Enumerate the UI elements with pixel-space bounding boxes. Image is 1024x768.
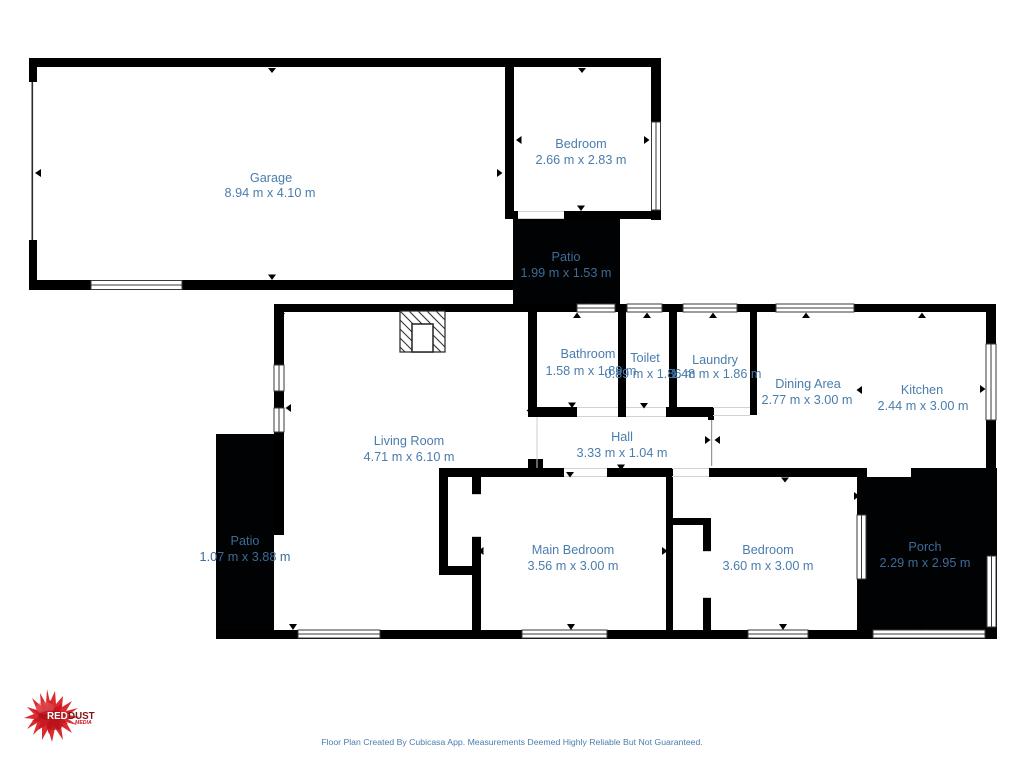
svg-text:MEDIA: MEDIA: [75, 720, 92, 726]
svg-text:Bedroom: Bedroom: [555, 137, 606, 151]
svg-text:Patio: Patio: [552, 250, 581, 264]
svg-text:2.66 m x 2.83 m: 2.66 m x 2.83 m: [536, 153, 627, 167]
svg-text:3.56 m x 3.00 m: 3.56 m x 3.00 m: [528, 559, 619, 573]
svg-text:Living Room: Living Room: [374, 434, 445, 448]
svg-text:Toilet: Toilet: [630, 351, 660, 365]
svg-text:3.60 m x 3.00 m: 3.60 m x 3.00 m: [723, 559, 814, 573]
svg-text:Garage: Garage: [250, 171, 292, 185]
svg-text:2.29 m x 2.95 m: 2.29 m x 2.95 m: [880, 556, 971, 570]
svg-text:Porch: Porch: [908, 540, 941, 554]
svg-text:Laundry: Laundry: [692, 353, 739, 367]
svg-text:Bedroom: Bedroom: [742, 543, 793, 557]
svg-text:Floor Plan Created By Cubicasa: Floor Plan Created By Cubicasa App. Meas…: [321, 737, 702, 747]
svg-text:Bathroom: Bathroom: [560, 347, 615, 361]
svg-text:RED: RED: [47, 711, 68, 722]
svg-text:Hall: Hall: [611, 430, 633, 444]
svg-text:Main Bedroom: Main Bedroom: [532, 543, 615, 557]
svg-text:3.33 m x 1.04 m: 3.33 m x 1.04 m: [577, 446, 668, 460]
svg-text:1.48 m x 1.86 m: 1.48 m x 1.86 m: [671, 367, 762, 381]
svg-text:1.07 m x 3.88 m: 1.07 m x 3.88 m: [200, 550, 291, 564]
svg-text:1.99 m x 1.53 m: 1.99 m x 1.53 m: [521, 266, 612, 280]
svg-text:Patio: Patio: [231, 534, 260, 548]
svg-text:Dining Area: Dining Area: [775, 377, 842, 391]
svg-text:4.71 m x 6.10 m: 4.71 m x 6.10 m: [364, 450, 455, 464]
svg-text:8.94 m x 4.10 m: 8.94 m x 4.10 m: [225, 186, 316, 200]
svg-text:2.77 m x 3.00 m: 2.77 m x 3.00 m: [762, 393, 853, 407]
svg-text:Kitchen: Kitchen: [901, 383, 943, 397]
svg-text:2.44 m x 3.00 m: 2.44 m x 3.00 m: [878, 399, 969, 413]
